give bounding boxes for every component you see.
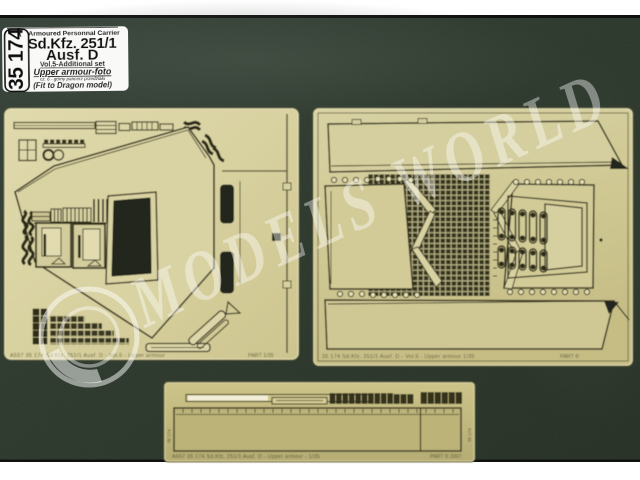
svg-text:35 174: 35 174 [4, 28, 28, 90]
svg-text:PART ©: PART © [560, 353, 579, 360]
svg-text:35 174: 35 174 [167, 429, 172, 443]
svg-text:(Fit to Dragon model): (Fit to Dragon model) [33, 80, 112, 90]
svg-text:PART 1/35: PART 1/35 [248, 353, 274, 359]
svg-text:PART © 2007: PART © 2007 [430, 453, 462, 460]
svg-text:A557 35 174 Sd.Kfz. 251/1 A: A557 35 174 Sd.Kfz. 251/1 Ausf. D - Vol.… [10, 353, 165, 359]
svg-text:A657 35 174 Sd.Kfz. 251/1: A657 35 174 Sd.Kfz. 251/1 Ausf. D - Uppe… [172, 454, 320, 460]
svg-text:35 174: 35 174 [467, 428, 472, 442]
svg-text:35 174 Sd.Kfz. 251/1 Ausf. D: 35 174 Sd.Kfz. 251/1 Ausf. D - Vol.5 - U… [322, 354, 475, 360]
